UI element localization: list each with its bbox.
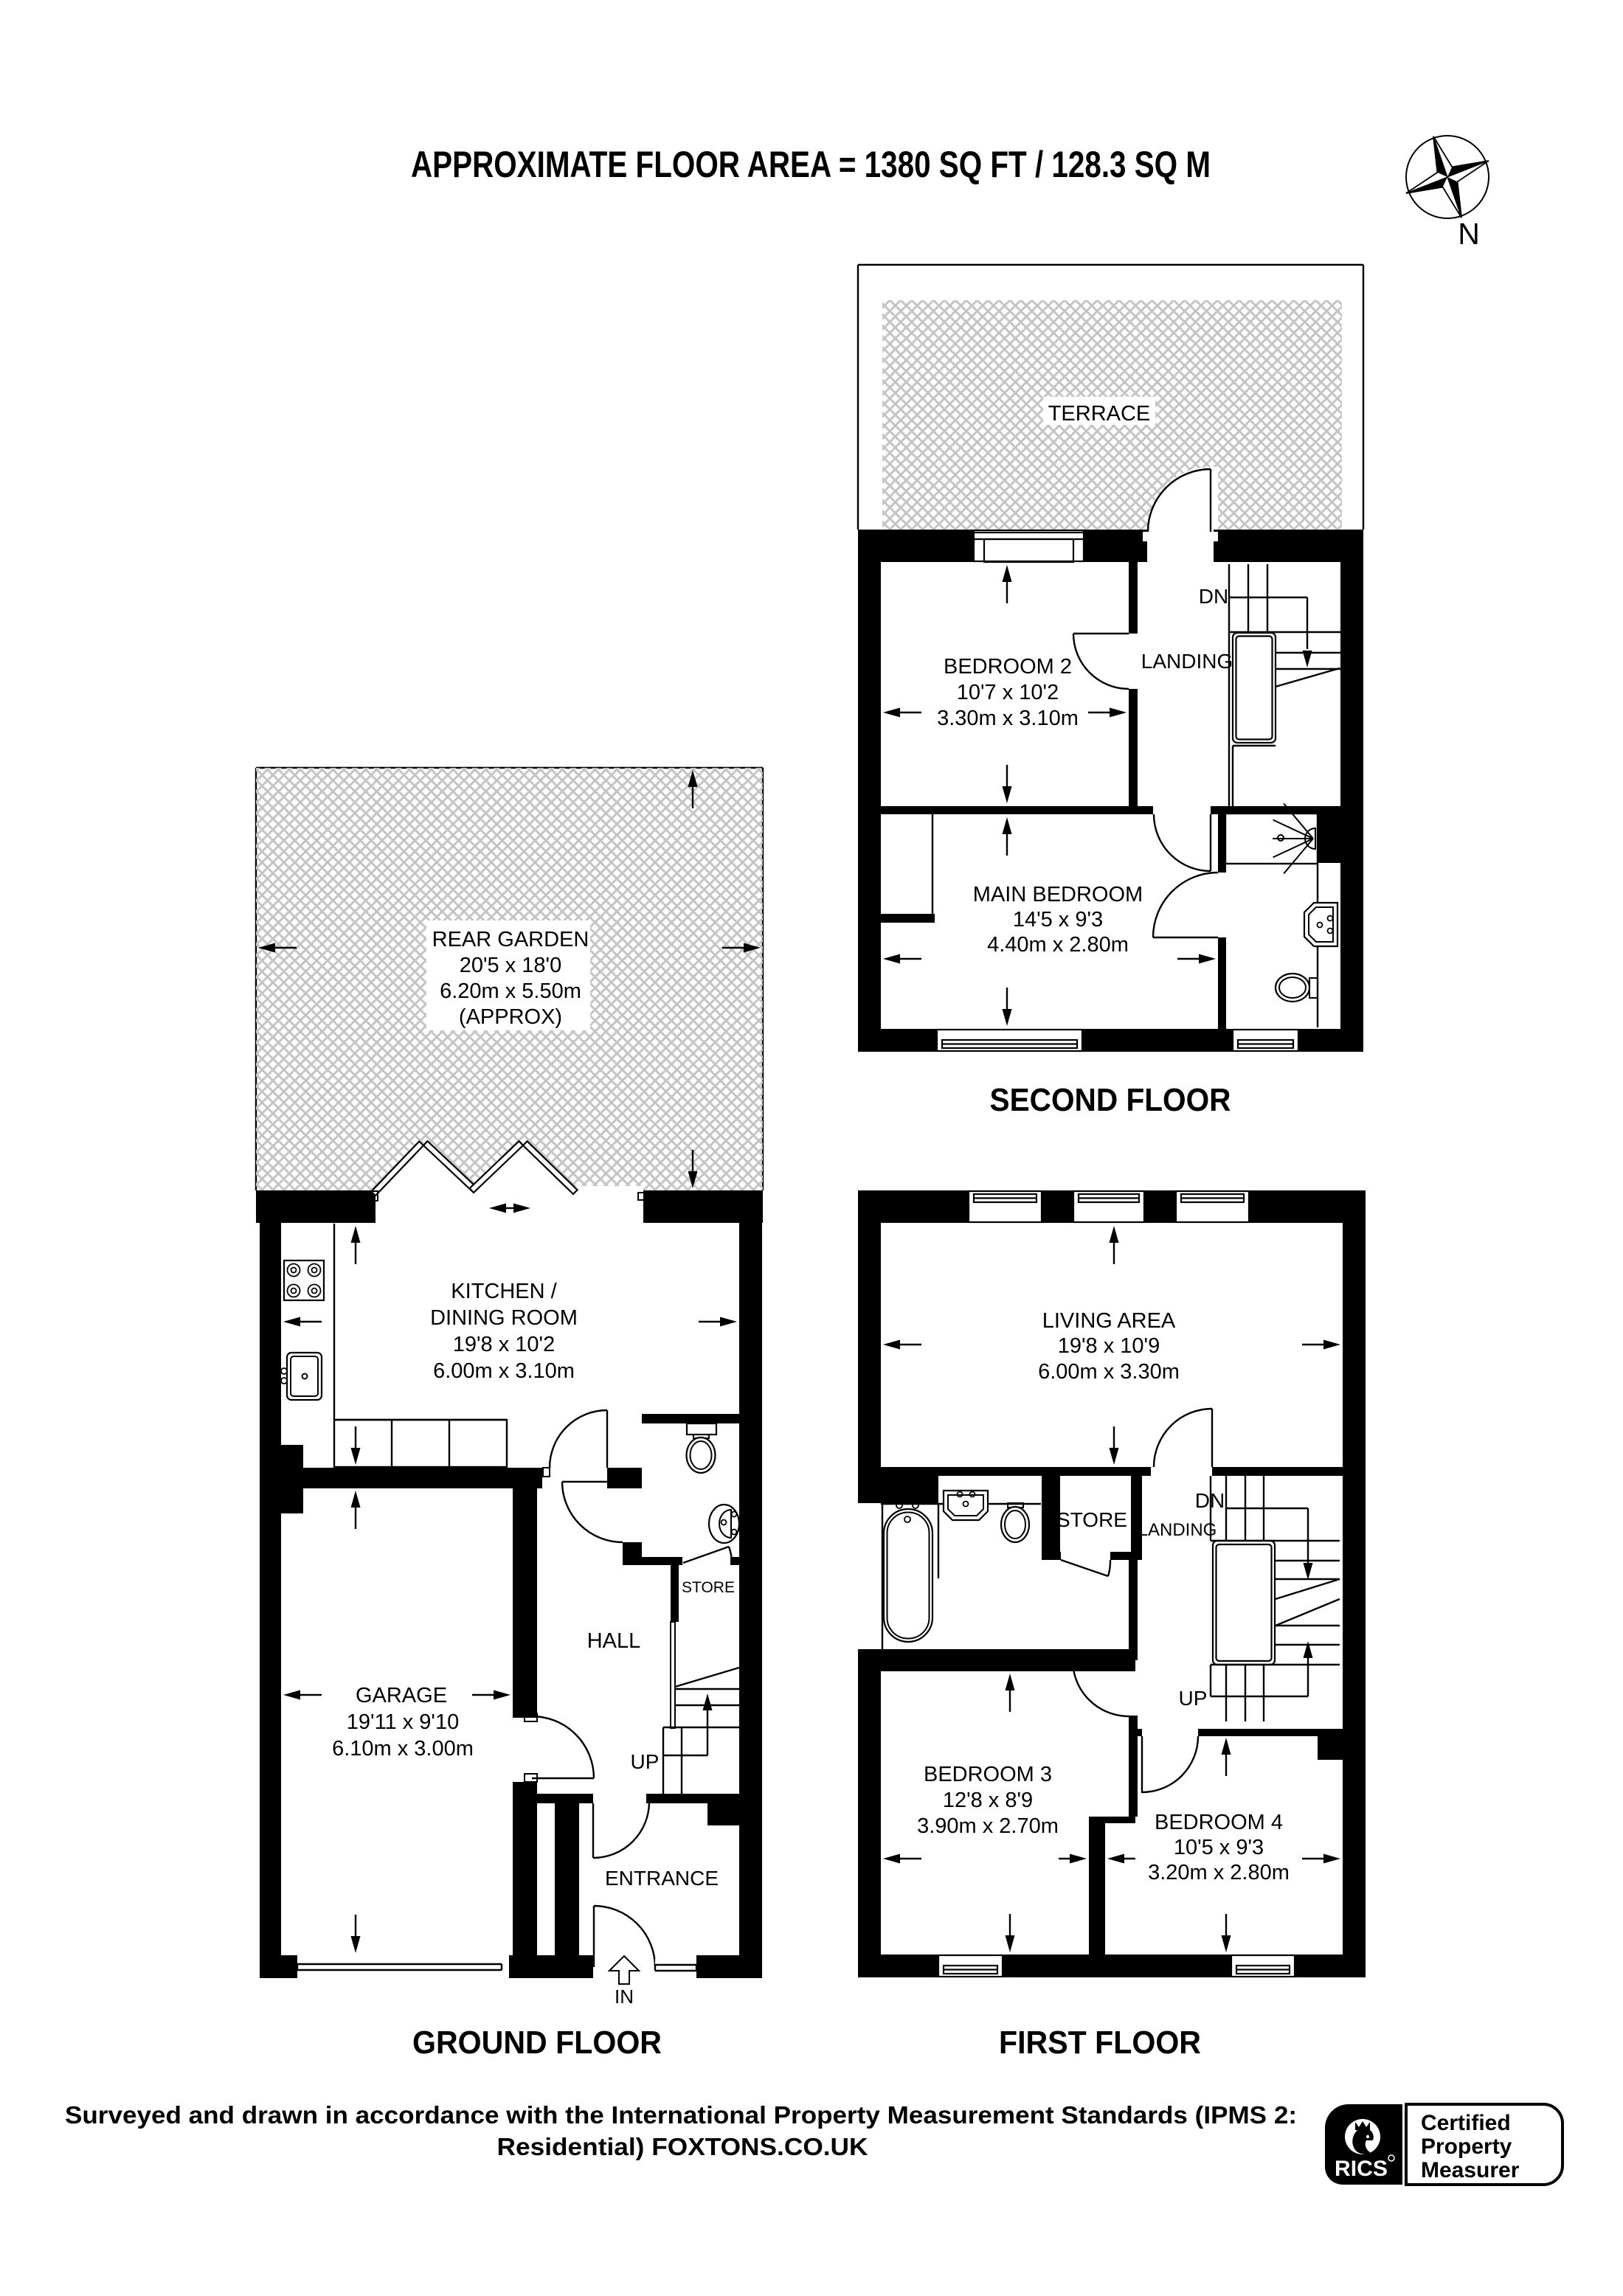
svg-text:TERRACE: TERRACE <box>1048 402 1151 426</box>
svg-text:UP: UP <box>631 1750 660 1773</box>
svg-text:SECOND FLOOR: SECOND FLOOR <box>990 1082 1231 1118</box>
svg-text:10'5 x 9'3: 10'5 x 9'3 <box>1174 1836 1264 1859</box>
svg-text:4.40m x 2.80m: 4.40m x 2.80m <box>987 933 1129 957</box>
svg-text:3.20m x 2.80m: 3.20m x 2.80m <box>1148 1861 1290 1884</box>
svg-text:19'8 x 10'2: 19'8 x 10'2 <box>453 1333 555 1356</box>
svg-text:BEDROOM 3: BEDROOM 3 <box>924 1763 1052 1786</box>
svg-text:DINING ROOM: DINING ROOM <box>430 1306 578 1330</box>
svg-text:LANDING: LANDING <box>1141 650 1233 673</box>
svg-text:20'5 x 18'0: 20'5 x 18'0 <box>460 954 561 977</box>
svg-text:LIVING AREA: LIVING AREA <box>1042 1309 1176 1333</box>
svg-text:N: N <box>1458 217 1480 251</box>
svg-text:19'11 x 9'10: 19'11 x 9'10 <box>347 1710 459 1734</box>
svg-text:MAIN BEDROOM: MAIN BEDROOM <box>973 883 1143 906</box>
svg-text:HALL: HALL <box>587 1629 641 1653</box>
svg-text:STORE: STORE <box>682 1579 735 1596</box>
svg-text:STORE: STORE <box>1056 1508 1127 1531</box>
svg-text:6.20m x 5.50m: 6.20m x 5.50m <box>440 979 581 1003</box>
svg-text:14'5 x 9'3: 14'5 x 9'3 <box>1013 908 1103 932</box>
svg-text:LANDING: LANDING <box>1138 1520 1217 1540</box>
svg-text:KITCHEN /: KITCHEN / <box>451 1280 557 1303</box>
svg-text:3.90m x 2.70m: 3.90m x 2.70m <box>917 1814 1059 1838</box>
svg-text:6.00m x 3.10m: 6.00m x 3.10m <box>433 1359 575 1383</box>
svg-text:Residential) FOXTONS.CO.UK: Residential) FOXTONS.CO.UK <box>497 2133 868 2160</box>
svg-text:UP: UP <box>1179 1687 1208 1710</box>
svg-text:APPROXIMATE FLOOR AREA = 1380: APPROXIMATE FLOOR AREA = 1380 SQ FT / 12… <box>411 144 1211 185</box>
svg-text:BEDROOM 2: BEDROOM 2 <box>944 655 1072 679</box>
svg-text:GROUND FLOOR: GROUND FLOOR <box>412 2025 662 2061</box>
svg-text:DN: DN <box>1199 585 1228 608</box>
svg-text:3.30m x 3.10m: 3.30m x 3.10m <box>937 707 1079 730</box>
svg-text:FIRST FLOOR: FIRST FLOOR <box>999 2025 1201 2061</box>
svg-text:RICS: RICS <box>1335 2157 1388 2181</box>
svg-text:GARAGE: GARAGE <box>356 1684 447 1707</box>
svg-text:(APPROX): (APPROX) <box>459 1005 562 1029</box>
svg-text:10'7 x 10'2: 10'7 x 10'2 <box>957 681 1059 704</box>
svg-text:6.00m x 3.30m: 6.00m x 3.30m <box>1038 1360 1180 1384</box>
svg-text:ENTRANCE: ENTRANCE <box>605 1867 719 1890</box>
svg-text:Surveyed and drawn in accordan: Surveyed and drawn in accordance with th… <box>65 2101 1297 2129</box>
svg-text:Property: Property <box>1421 2134 1512 2159</box>
svg-text:12'8 x 8'9: 12'8 x 8'9 <box>943 1789 1033 1812</box>
svg-text:Measurer: Measurer <box>1421 2158 1520 2182</box>
svg-text:Certified: Certified <box>1421 2111 1511 2135</box>
svg-text:6.10m x 3.00m: 6.10m x 3.00m <box>332 1737 474 1761</box>
svg-text:19'8 x 10'9: 19'8 x 10'9 <box>1058 1334 1160 1358</box>
svg-text:BEDROOM 4: BEDROOM 4 <box>1155 1811 1283 1834</box>
svg-text:IN: IN <box>615 1985 634 2008</box>
svg-text:REAR GARDEN: REAR GARDEN <box>432 928 589 951</box>
